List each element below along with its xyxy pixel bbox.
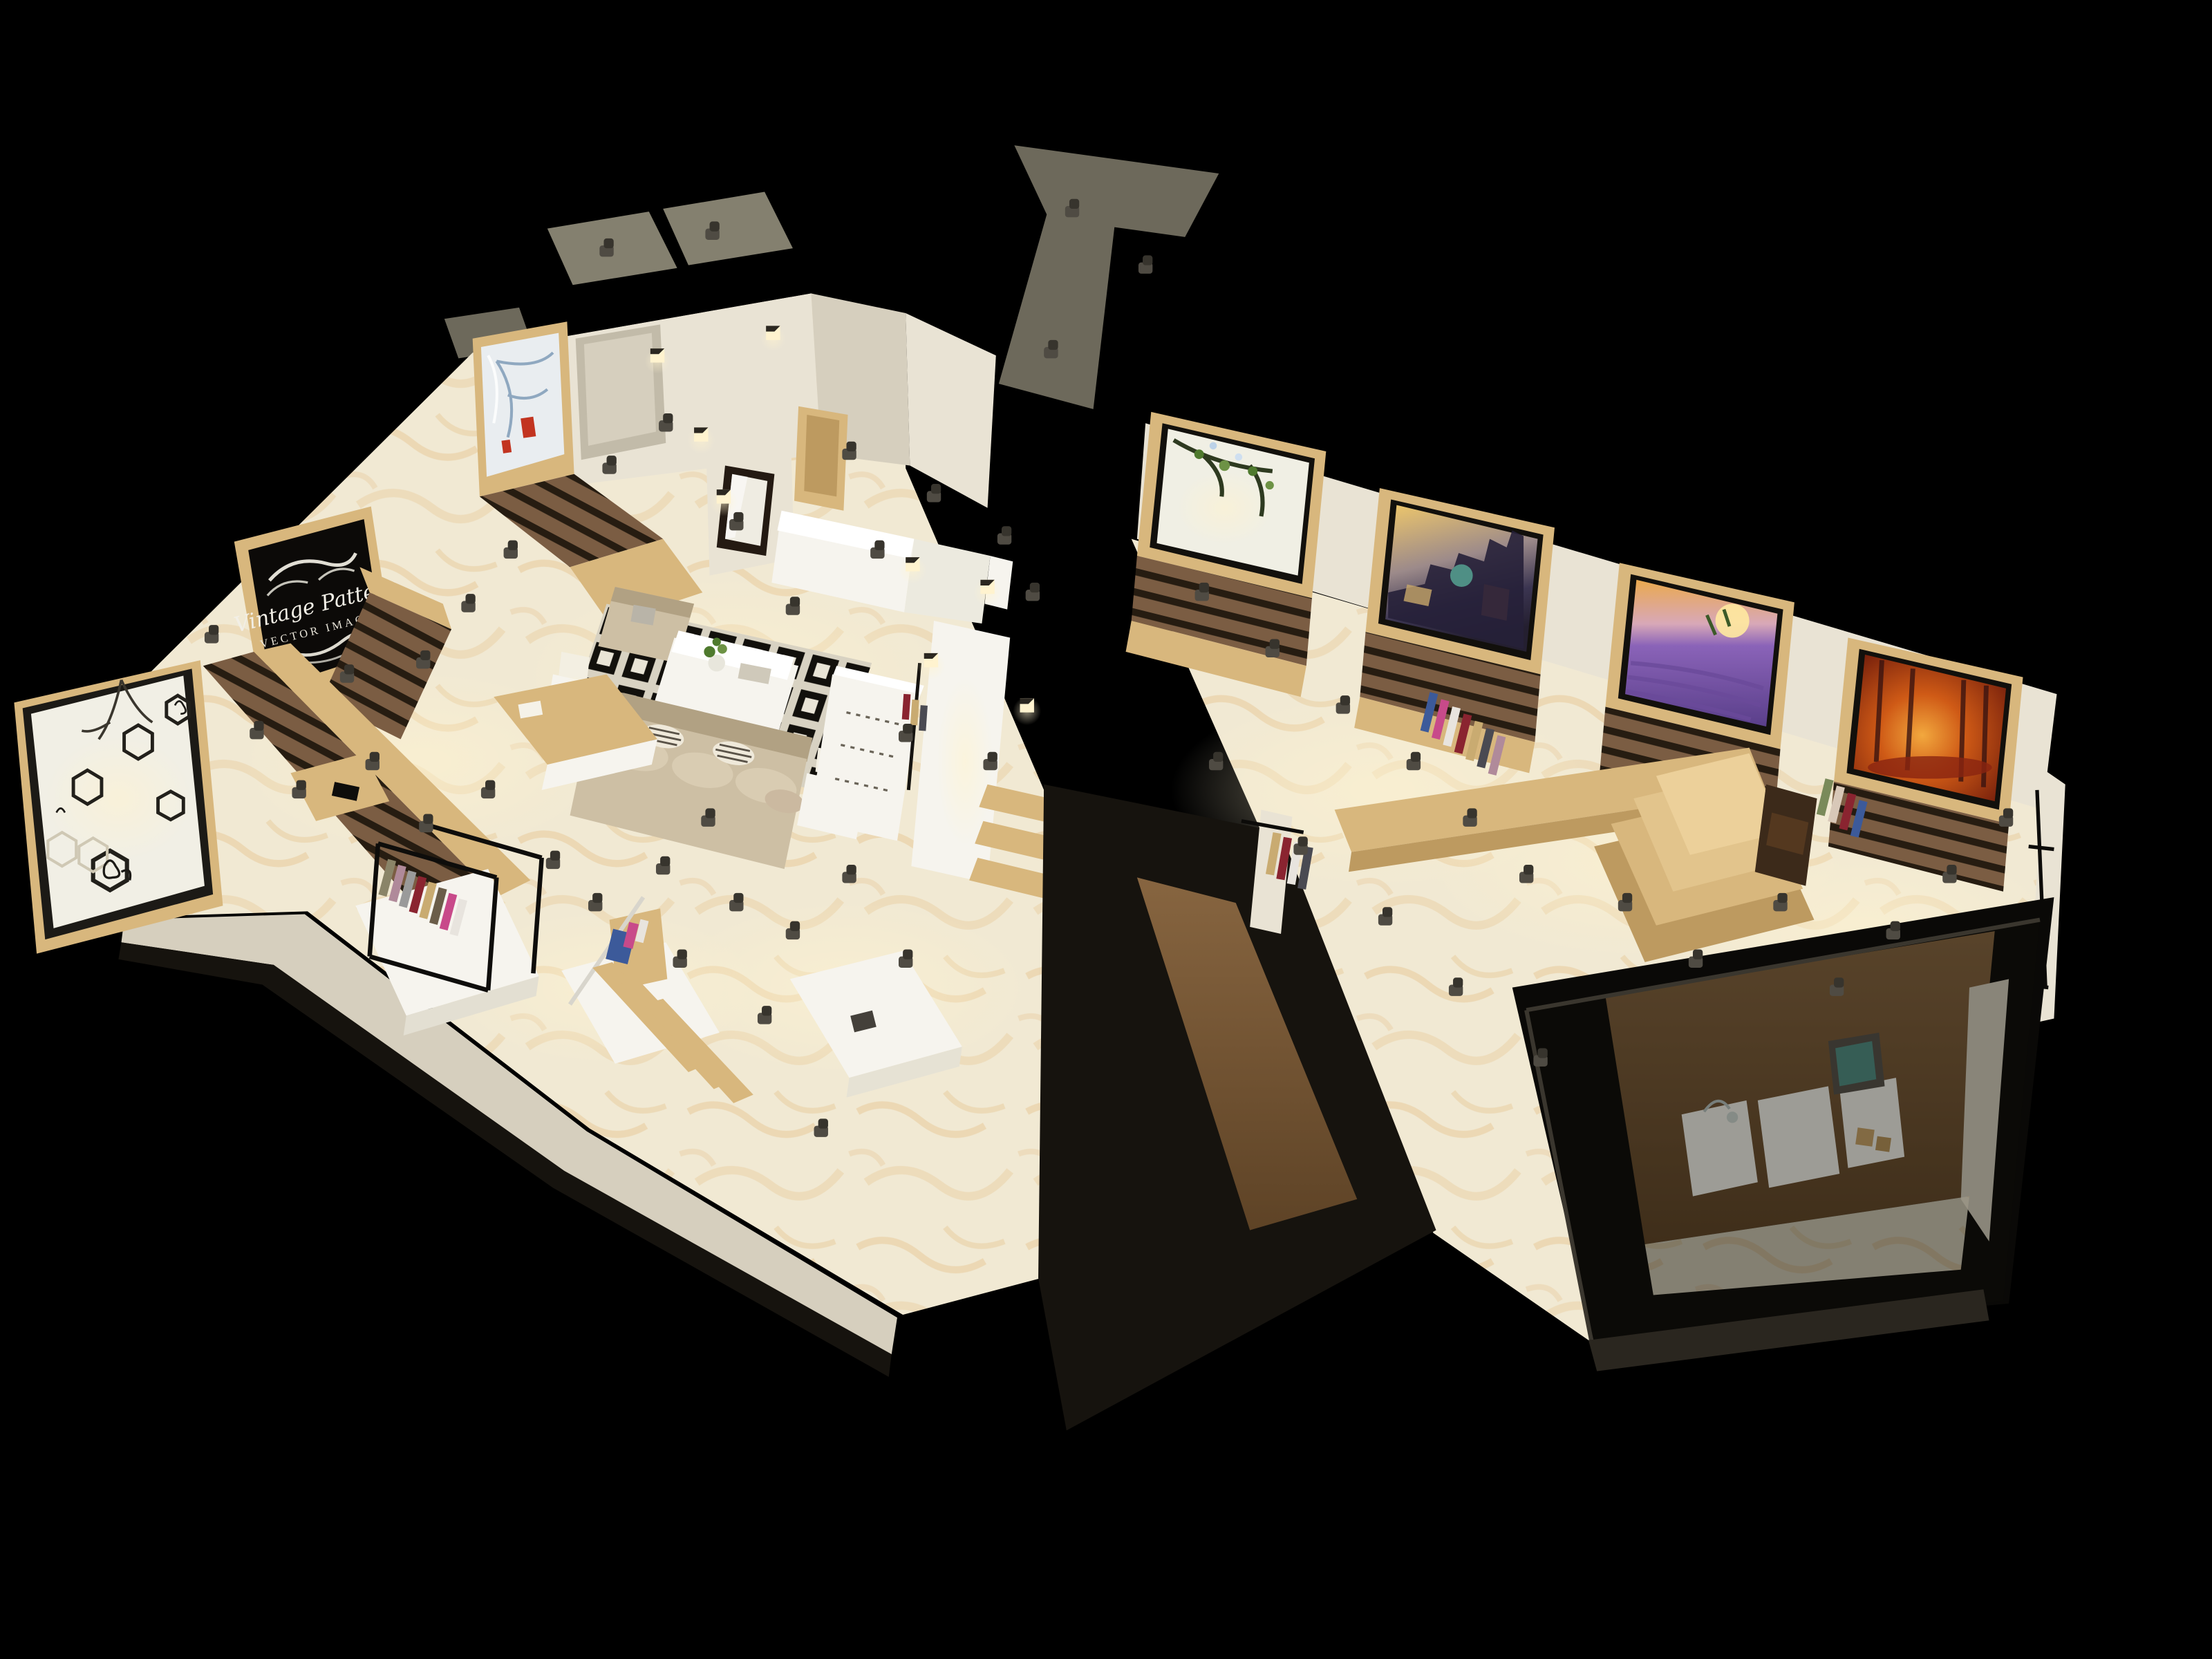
hexagon-cat-wall: hexagon-cat-display-wall xyxy=(14,660,223,953)
store-render: winter-deer-painting vintage-pattern-sig… xyxy=(0,0,2212,1659)
wall-niche-inner xyxy=(584,333,656,446)
gallery-unit-autumn: autumn-forest xyxy=(1828,637,2023,891)
render-stage: winter-deer-painting vintage-pattern-sig… xyxy=(0,0,2212,1659)
gallery-unit-blossom: spring-blossom-branch xyxy=(1126,412,1327,697)
entry-door-panel xyxy=(804,415,839,496)
